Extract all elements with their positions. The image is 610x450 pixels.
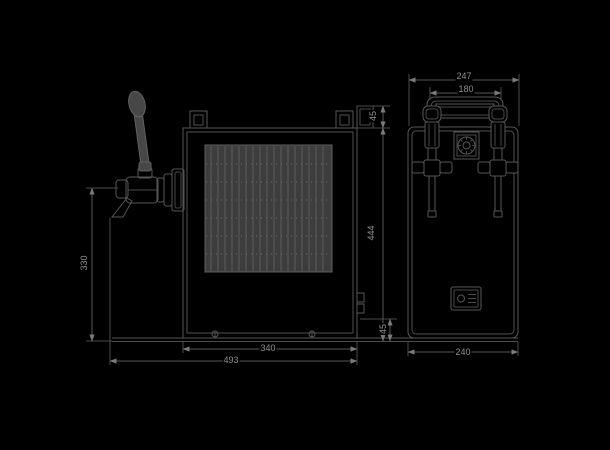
drawing-canvas [0, 0, 610, 450]
dim-label-side-tap-spacing: 180 [457, 84, 474, 94]
dim-label-front-base-height: 45 [378, 323, 388, 335]
regulator-knob [454, 132, 479, 159]
base-screws [212, 331, 315, 337]
dim-label-front-overall-width: 493 [222, 355, 239, 365]
dim-label-front-height: 444 [366, 224, 376, 241]
beer-tap-handle [126, 89, 151, 171]
tap-right [478, 106, 518, 217]
ventilation-grille [205, 145, 332, 272]
dim-label-side-depth: 240 [454, 347, 471, 357]
ground-line [112, 338, 518, 342]
side-view [408, 97, 518, 338]
drip-spout [112, 198, 132, 217]
lifting-handle-left [190, 111, 207, 128]
tap-left [412, 106, 452, 217]
rating-plate [451, 287, 481, 310]
dim-label-side-top-width: 247 [455, 71, 472, 81]
dim-label-front-body-width: 340 [259, 343, 276, 353]
faucet [112, 168, 184, 217]
technical-drawing: 247 180 240 45 444 45 330 340 493 [0, 0, 610, 450]
dim-label-front-top-offset: 45 [368, 110, 378, 122]
dim-label-front-faucet-height: 330 [79, 254, 89, 271]
lifting-handle-right [336, 111, 353, 128]
power-socket-icon [458, 295, 465, 302]
side-fittings [357, 293, 364, 313]
